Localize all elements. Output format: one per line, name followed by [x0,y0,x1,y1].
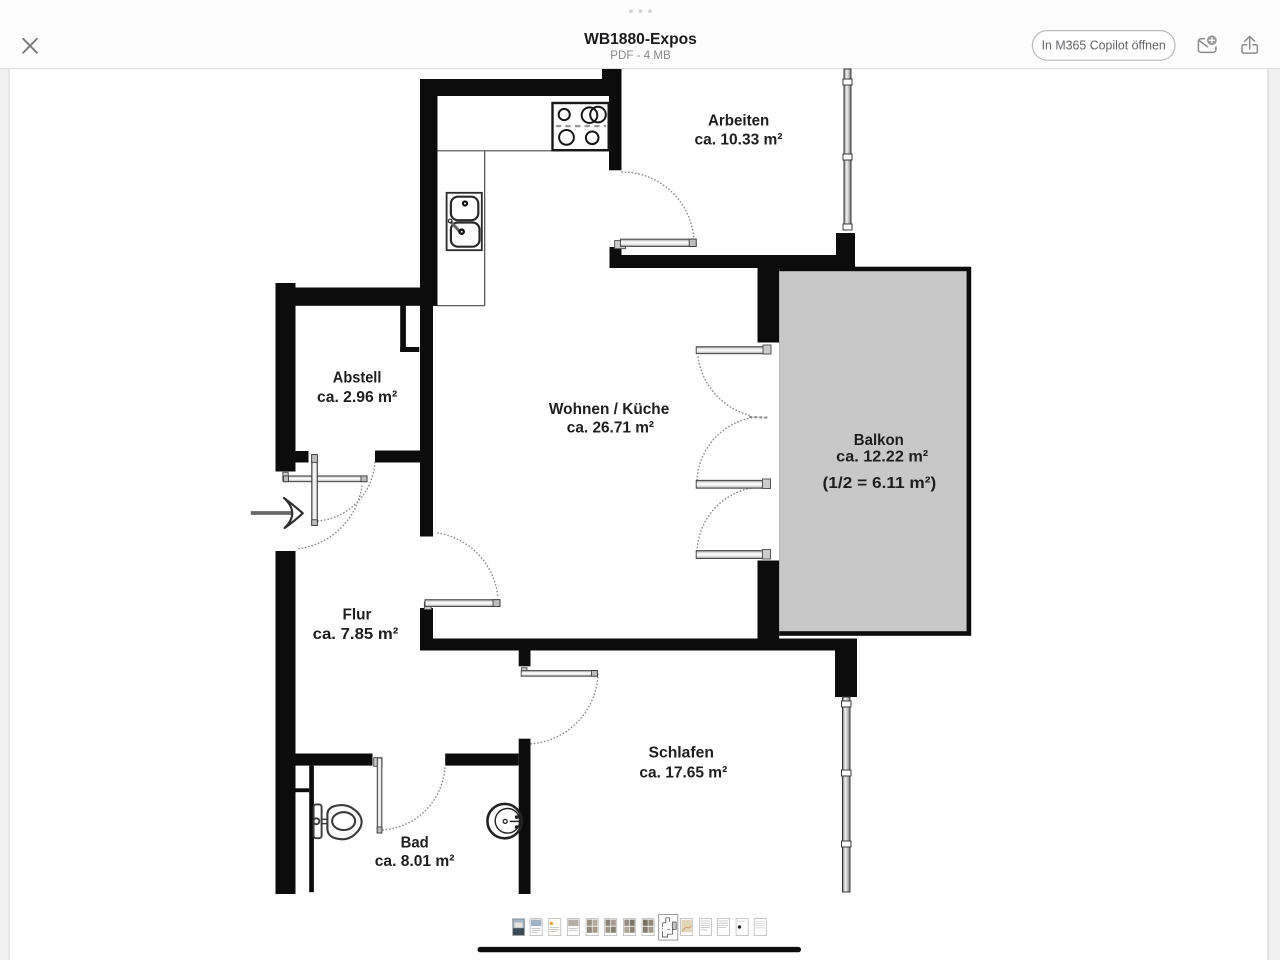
svg-text:Bad: Bad [401,835,429,852]
svg-text:PDF - 4 MB: PDF - 4 MB [610,49,671,62]
svg-text:ca. 10.33 m²: ca. 10.33 m² [695,131,783,148]
svg-text:Balkon: Balkon [854,432,904,449]
svg-text:Abstell: Abstell [333,369,382,386]
svg-text:ca. 26.71 m²: ca. 26.71 m² [567,420,654,437]
svg-text:Flur: Flur [343,606,372,623]
svg-text:WB1880-Expos: WB1880-Expos [584,31,697,48]
svg-text:ca. 17.65 m²: ca. 17.65 m² [639,765,727,782]
svg-text:Schlafen: Schlafen [649,745,714,762]
svg-text:Wohnen / Küche: Wohnen / Küche [549,401,669,418]
svg-text:ca. 7.85 m²: ca. 7.85 m² [313,626,399,643]
svg-text:Arbeiten: Arbeiten [708,113,769,130]
svg-text:(1/2 = 6.11 m²): (1/2 = 6.11 m²) [823,475,937,492]
svg-text:ca. 8.01 m²: ca. 8.01 m² [375,853,455,870]
svg-text:In M365 Copilot öffnen: In M365 Copilot öffnen [1042,38,1166,53]
svg-text:ca. 12.22 m²: ca. 12.22 m² [836,449,928,466]
svg-text:ca. 2.96 m²: ca. 2.96 m² [317,389,397,406]
